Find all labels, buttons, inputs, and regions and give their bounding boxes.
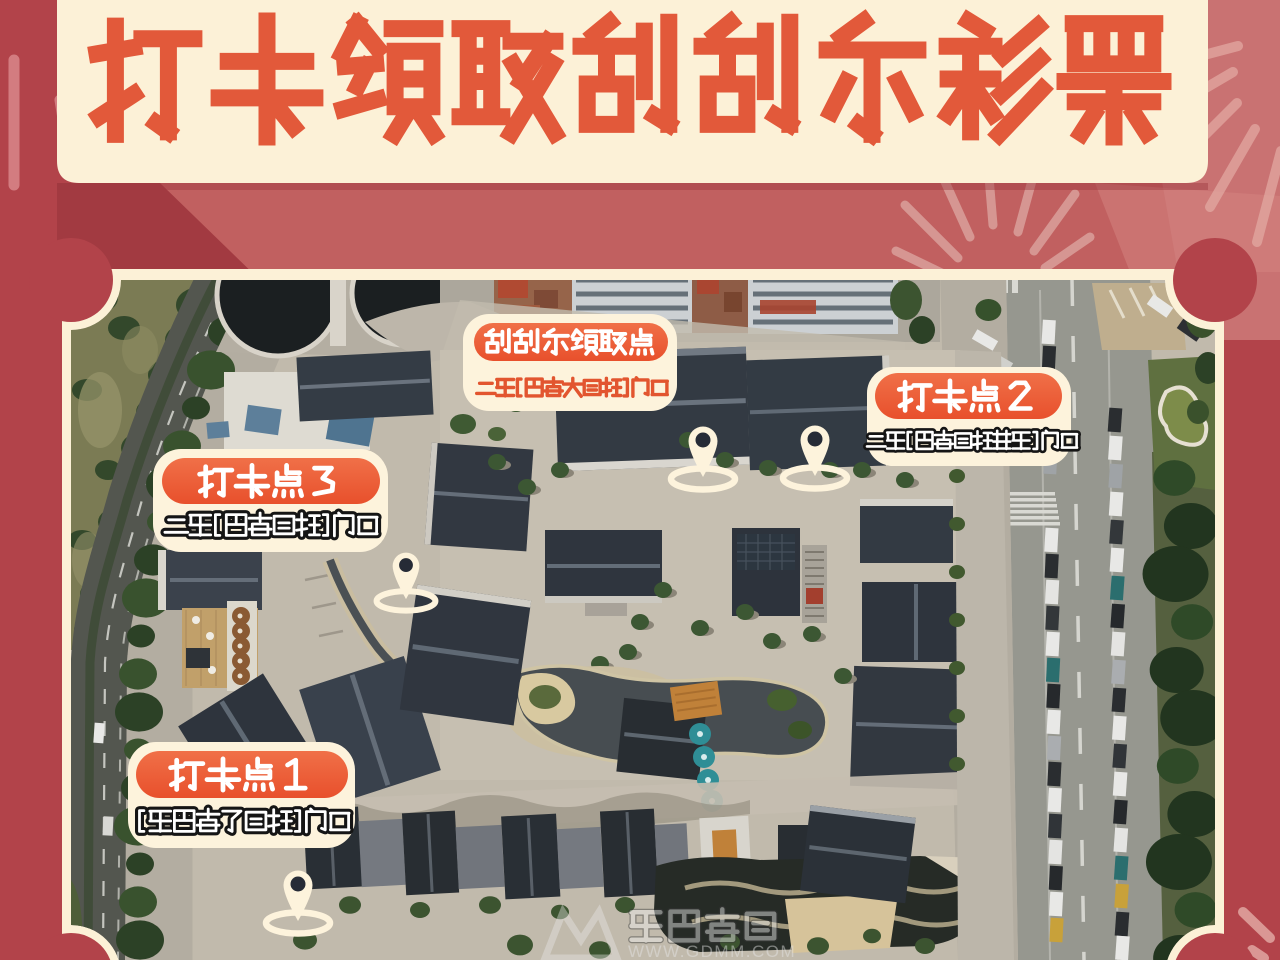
svg-text:WWW.GDMM.COM: WWW.GDMM.COM <box>628 942 796 960</box>
